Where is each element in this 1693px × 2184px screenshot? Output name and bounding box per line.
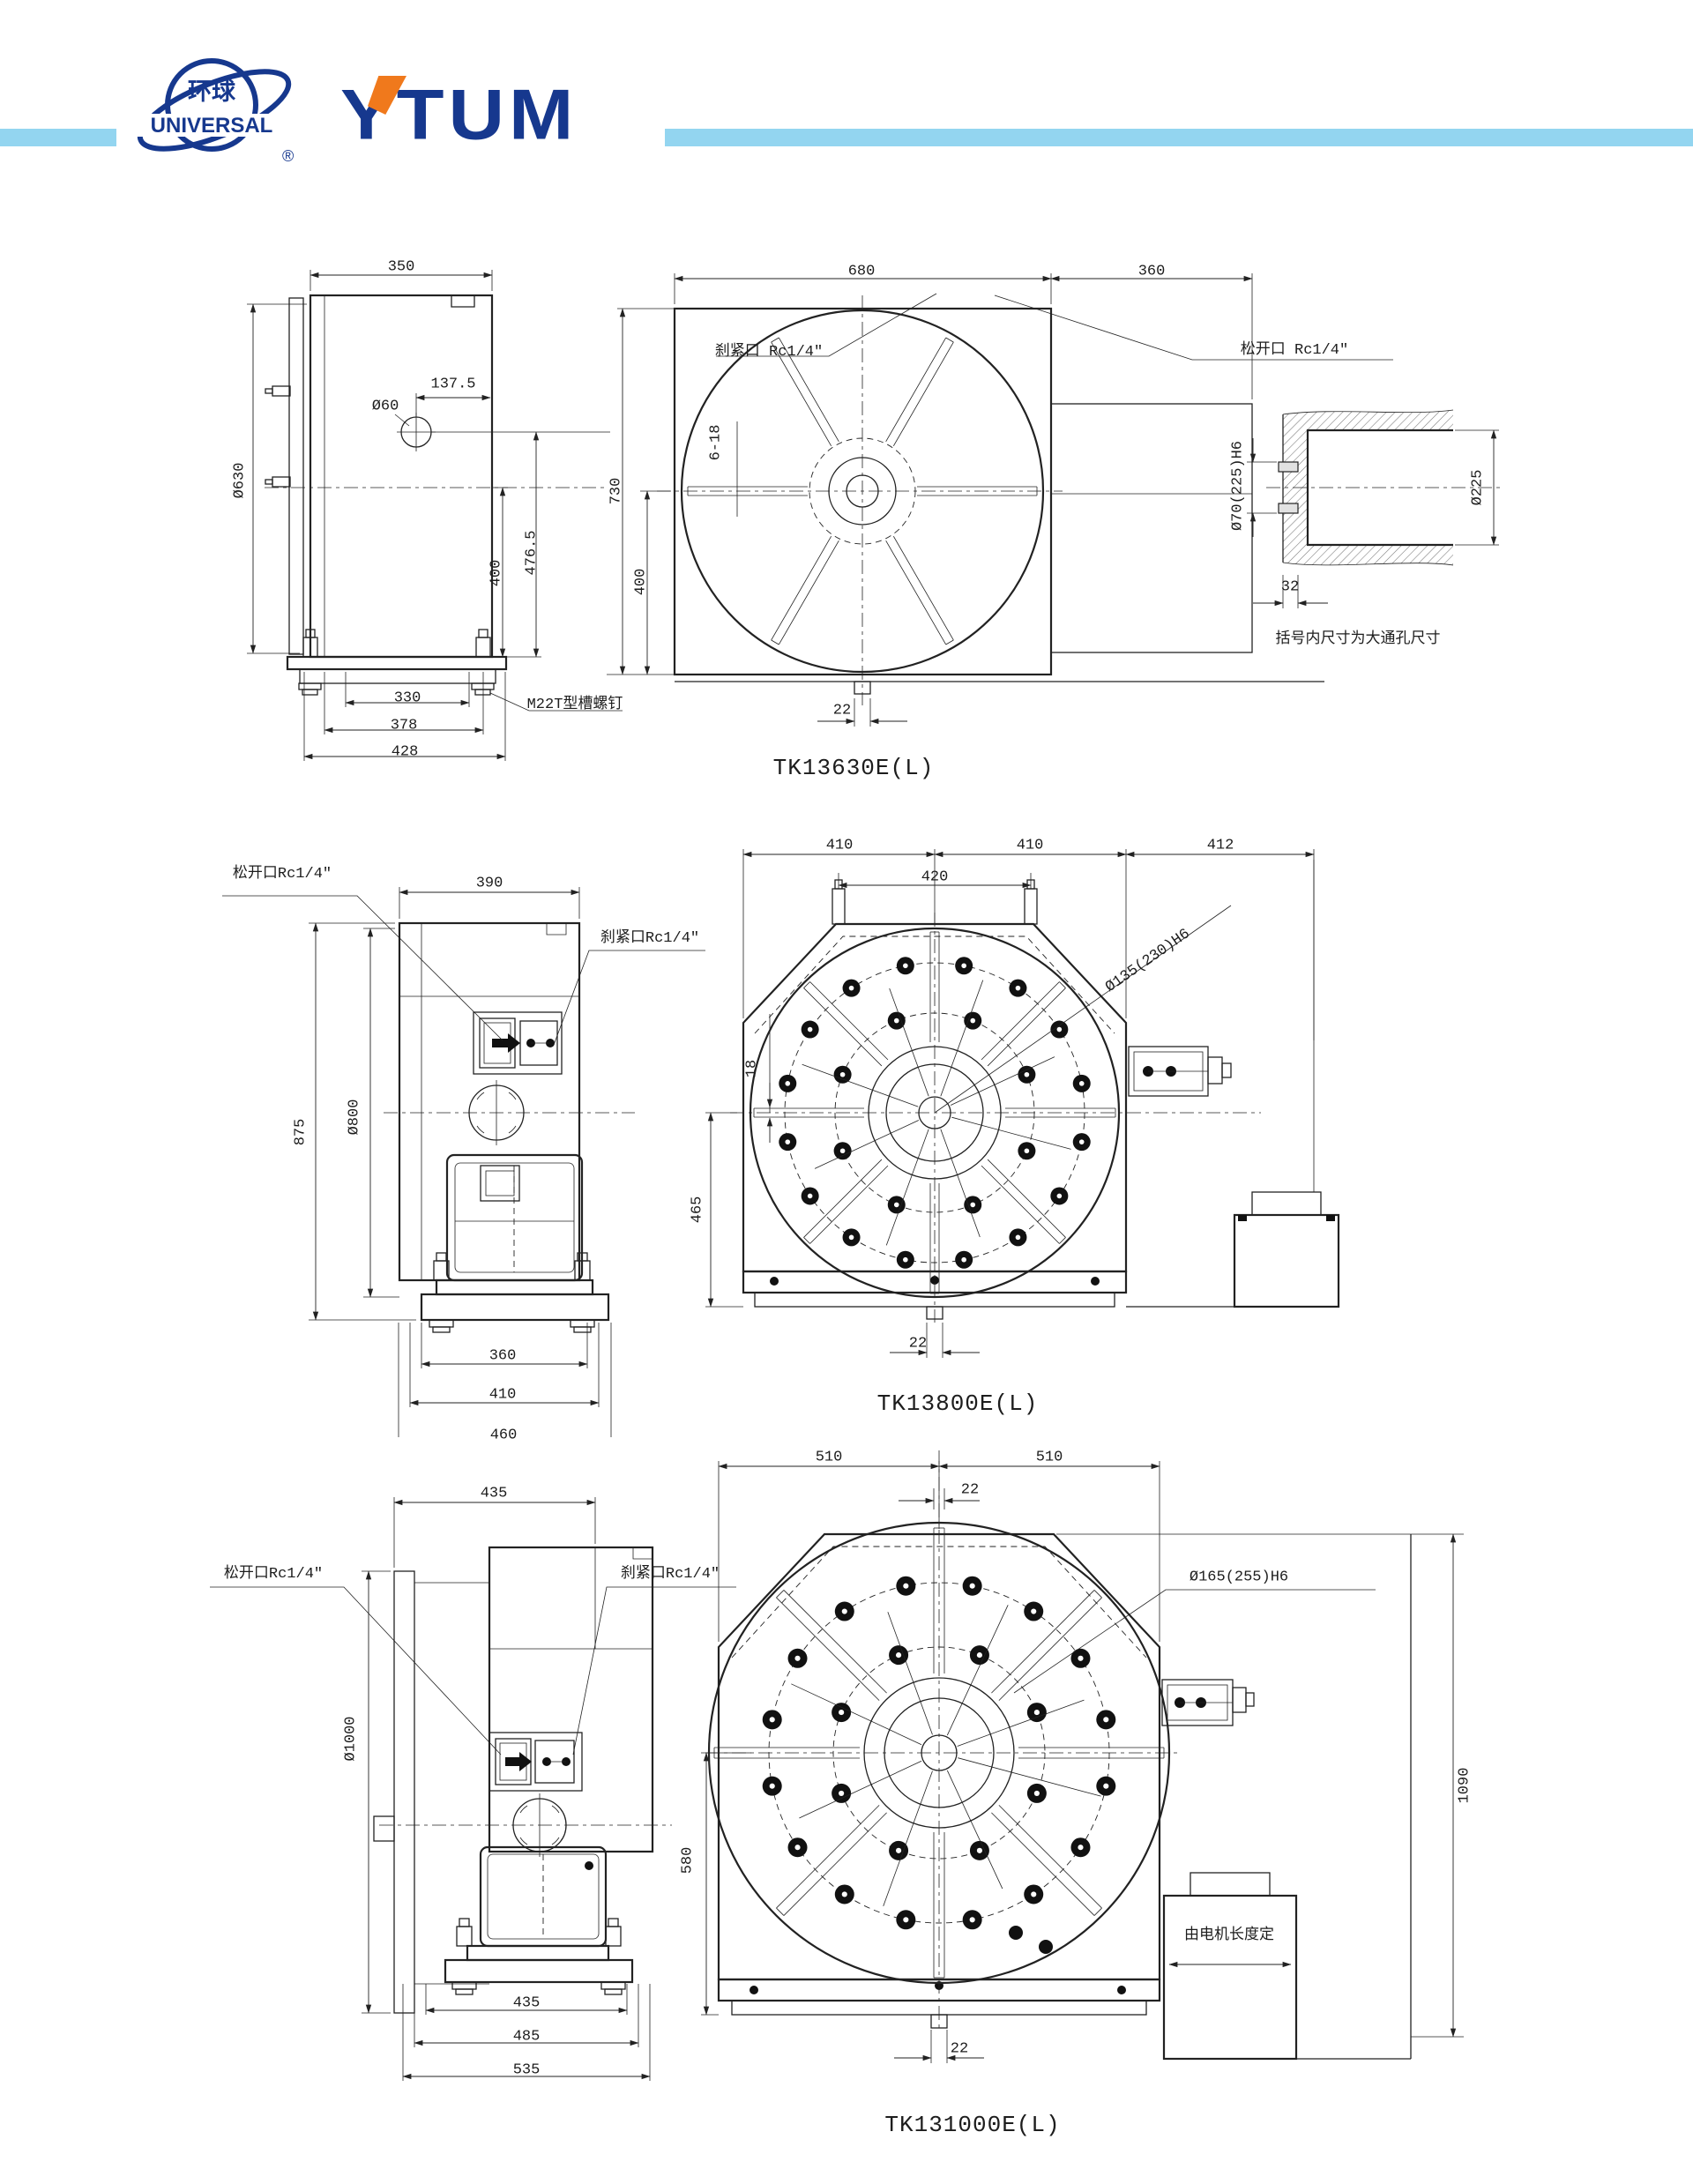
label-clamp-port-3: 刹紧口Rc1/4″: [621, 1560, 720, 1583]
label-motor-length: 由电机长度定: [1184, 1921, 1274, 1944]
dim-535-base: 535: [513, 2062, 541, 2079]
label-release-port-3: 松开口Rc1/4″: [224, 1560, 323, 1583]
front-view-tk131000: [701, 1450, 1464, 2063]
dim-435-base: 435: [513, 1995, 541, 2012]
drawing-section-tk131000: 435 松开口Rc1/4″ 刹紧口Rc1/4″ Ø1000 435 485 53…: [0, 0, 1693, 2184]
dim-1090: 1090: [1457, 1768, 1473, 1804]
dim-dia-1000: Ø1000: [343, 1716, 360, 1761]
side-view-tk131000: [210, 1497, 736, 2081]
label-bore-165-255: Ø165(255)H6: [1190, 1569, 1288, 1586]
dim-580: 580: [680, 1847, 697, 1875]
catalog-page: 环球 UNIVERSAL ® YTUM: [0, 0, 1693, 2184]
model-title-tk131000: TK131000E(L): [884, 2112, 1060, 2138]
dim-22-top: 22: [961, 1482, 979, 1499]
dim-435-top: 435: [481, 1486, 508, 1502]
dim-510-right: 510: [1036, 1450, 1063, 1466]
dim-510-left: 510: [816, 1450, 843, 1466]
drawing-canvas-tk131000: [0, 1437, 1693, 2184]
dim-485-base: 485: [513, 2029, 541, 2046]
dim-22-bottom: 22: [951, 2041, 968, 2058]
